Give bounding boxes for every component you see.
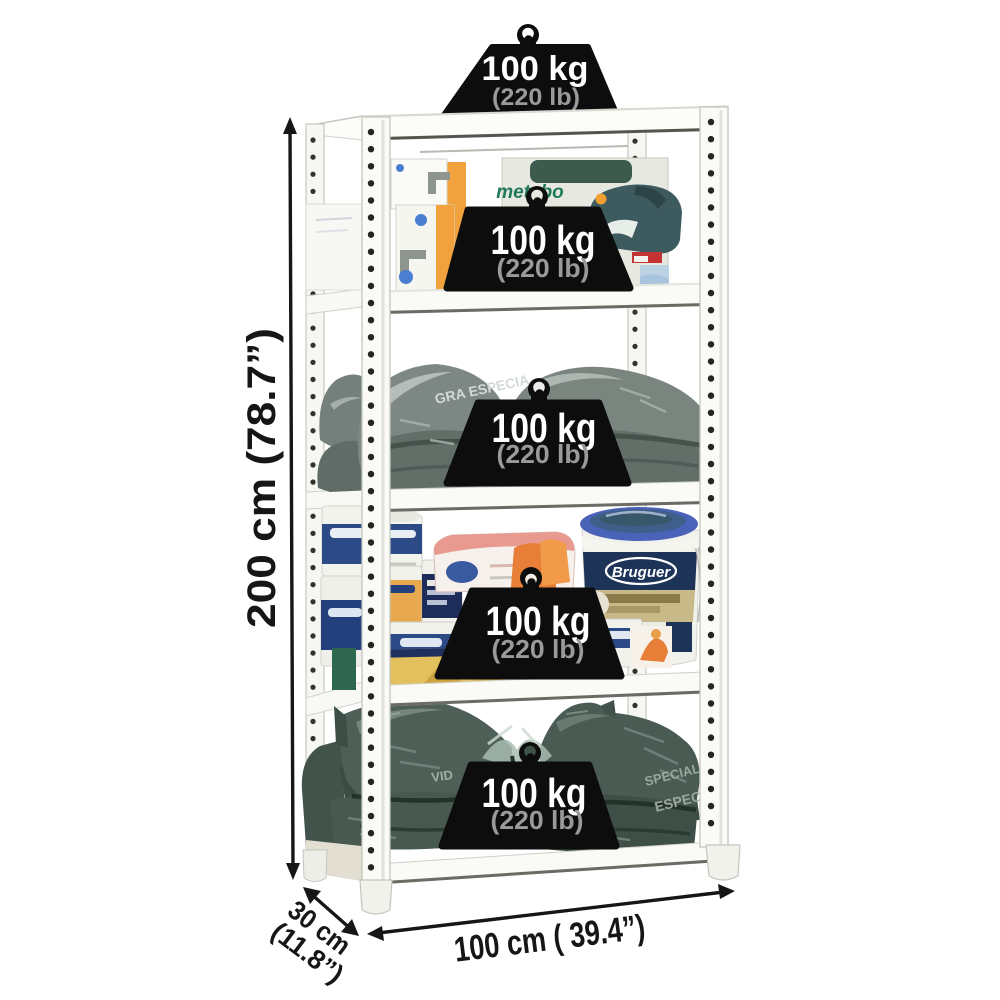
svg-text:Bruguer: Bruguer [612,564,672,581]
svg-text:(220 lb): (220 lb) [497,253,590,283]
svg-text:(220 lb): (220 lb) [492,634,585,664]
svg-text:VID: VID [430,767,454,785]
svg-text:100 kg: 100 kg [482,50,589,88]
svg-text:(220 lb): (220 lb) [491,805,584,835]
svg-text:200 cm (78.7”): 200 cm (78.7”) [240,328,284,628]
svg-text:(220 lb): (220 lb) [497,439,590,469]
svg-text:(220 lb): (220 lb) [492,84,580,111]
